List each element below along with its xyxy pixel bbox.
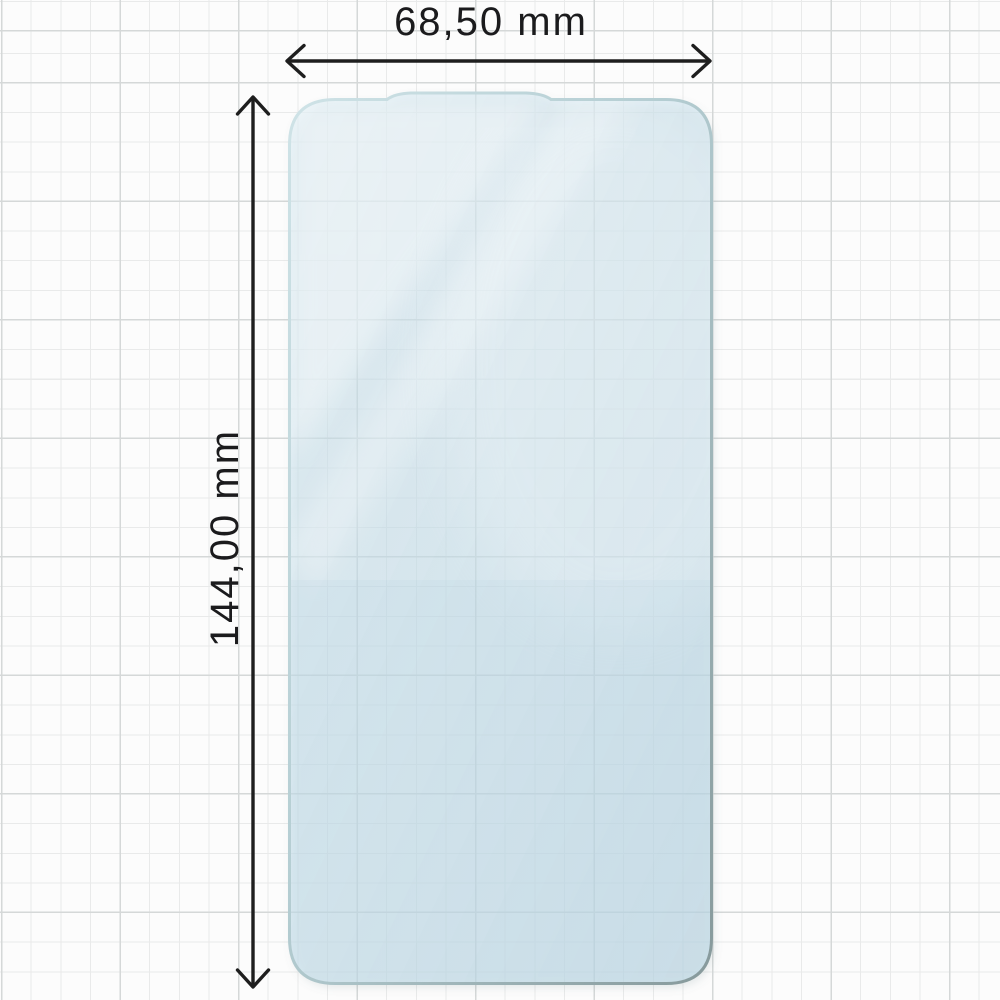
screen-protector-film	[289, 90, 790, 984]
diagram-svg	[0, 0, 1000, 1000]
width-dimension-arrow	[287, 46, 710, 77]
film-lower-shading	[289, 580, 712, 984]
height-dimension-label: 144,00 mm	[205, 388, 245, 688]
product-dimension-diagram: 68,50 mm 144,00 mm	[0, 0, 1000, 1000]
width-dimension-label: 68,50 mm	[341, 2, 641, 42]
film-highlight-glow	[440, 90, 790, 630]
